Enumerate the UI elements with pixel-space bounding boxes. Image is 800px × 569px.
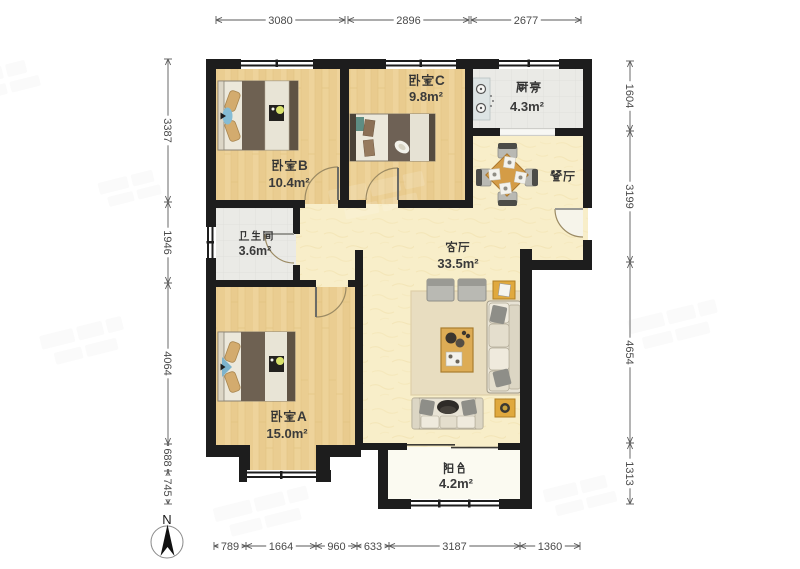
- svg-text:10.4m²: 10.4m²: [268, 175, 310, 190]
- svg-text:3199: 3199: [623, 184, 635, 208]
- svg-text:3387: 3387: [161, 118, 173, 142]
- svg-text:3187: 3187: [442, 541, 466, 553]
- svg-text:33.5m²: 33.5m²: [437, 256, 479, 271]
- svg-text:3.6m²: 3.6m²: [239, 244, 272, 258]
- svg-text:A: A: [297, 409, 307, 424]
- svg-text:C: C: [435, 73, 445, 88]
- svg-text:1313: 1313: [623, 461, 635, 485]
- svg-text:1664: 1664: [269, 541, 293, 553]
- svg-text:789: 789: [221, 541, 239, 553]
- svg-text:N: N: [162, 512, 171, 527]
- svg-text:960: 960: [327, 541, 345, 553]
- svg-text:745: 745: [161, 478, 173, 496]
- svg-text:3080: 3080: [268, 15, 292, 27]
- svg-text:1604: 1604: [623, 84, 635, 108]
- svg-text:2677: 2677: [514, 15, 538, 27]
- svg-text:688: 688: [161, 448, 173, 466]
- svg-text:1360: 1360: [538, 541, 562, 553]
- svg-text:4.3m²: 4.3m²: [510, 99, 545, 114]
- svg-text:B: B: [298, 158, 308, 173]
- svg-text:633: 633: [364, 541, 382, 553]
- svg-text:1946: 1946: [161, 230, 173, 254]
- svg-text:15.0m²: 15.0m²: [266, 426, 308, 441]
- svg-text:4064: 4064: [161, 351, 173, 375]
- svg-text:2896: 2896: [396, 15, 420, 27]
- svg-text:9.8m²: 9.8m²: [409, 89, 444, 104]
- svg-text:4654: 4654: [623, 340, 635, 364]
- svg-text:4.2m²: 4.2m²: [439, 476, 474, 491]
